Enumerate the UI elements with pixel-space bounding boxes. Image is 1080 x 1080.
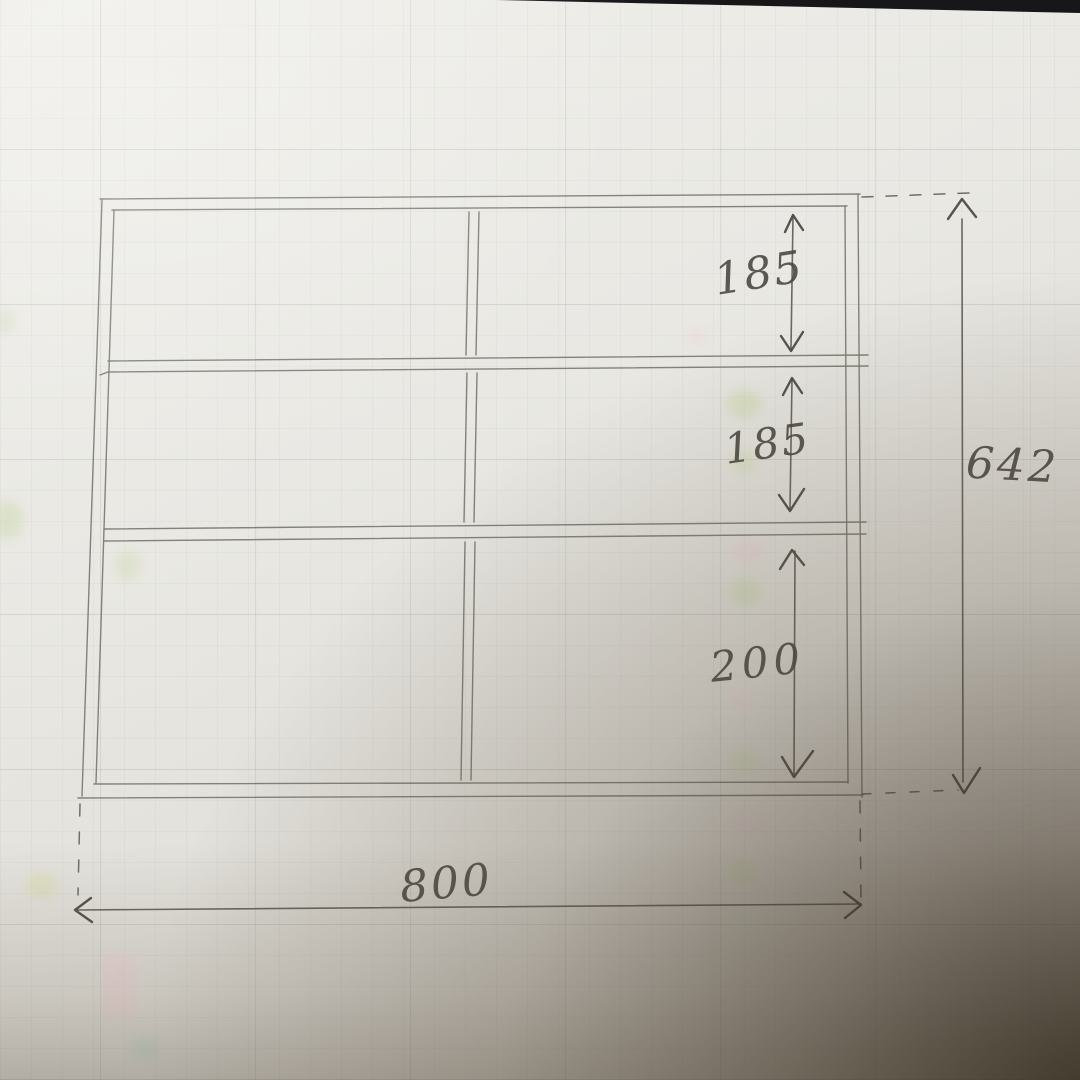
right-board-inner-line [845,206,848,783]
dimension-lines [77,216,963,910]
lower-shelf-top-line [104,522,866,529]
dashed-right-vertical [860,801,861,901]
arrowhead-right [844,892,861,918]
dimension-arrowheads [75,199,980,922]
upper-shelf-top-line [108,355,868,361]
arrowhead-down [782,751,813,777]
divider-middle-left-line [464,373,467,522]
top-board-inner-line [112,206,847,210]
lower-shelf-bottom-line [104,534,866,541]
divider-middle-right-line [474,373,477,522]
arrowhead-up [785,215,803,232]
shelf-sketch-svg [0,0,1080,1080]
arrowhead-down [779,489,804,511]
arrowhead-up [780,550,804,569]
upper-shelf-bottom-line [100,366,868,375]
divider-bottom-right-line [471,542,475,780]
bottom-board-outer-line [78,795,863,798]
dim-label-overall-width: 800 [398,858,494,910]
divider-top-right-line [476,212,479,355]
dim-line-overall-height [962,219,963,782]
dim-label-overall-height: 642 [965,442,1060,491]
divider-top-left-line [466,212,469,355]
dim-label-middle-section: 185 [721,417,812,471]
arrowhead-up [948,199,976,219]
dashed-left-vertical [78,804,80,895]
top-board-outer-line [100,194,860,199]
photo-of-hand-drawn-shelf-sketch: 185 185 200 642 800 [0,0,1080,1080]
divider-bottom-left-line [461,542,465,780]
arrowhead-down [953,768,980,793]
divider-lines [461,212,479,780]
bottom-board-inner-line [94,782,848,784]
dim-label-bottom-section: 200 [708,637,807,689]
dashed-top-right [862,193,969,197]
right-board-outer-line [858,195,862,797]
dashed-bottom-right [862,790,958,794]
